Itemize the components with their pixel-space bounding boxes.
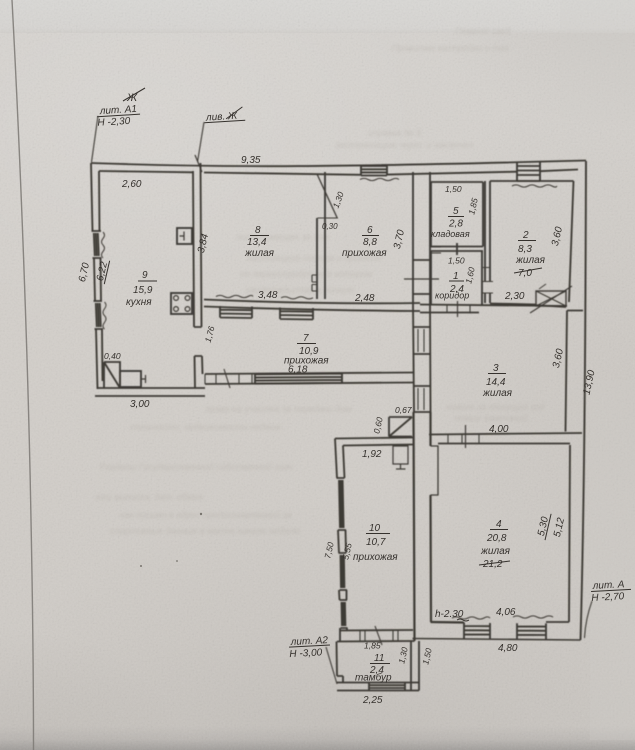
svg-text:прихожая: прихожая [342,248,387,259]
svg-text:новых замечаний: новых замечаний [455,413,528,423]
svg-text:1,50: 1,50 [445,184,462,194]
svg-text:8,3: 8,3 [518,244,532,255]
svg-text:жилая: жилая [244,248,275,259]
svg-text:3,00: 3,00 [130,399,150,410]
svg-text:6: 6 [367,225,373,236]
svg-text:15,9: 15,9 [133,285,153,296]
svg-text:9: 9 [142,270,148,281]
svg-text:13,4: 13,4 [247,237,267,248]
svg-text:1,92: 1,92 [362,449,382,460]
svg-text:кладовая: кладовая [431,229,470,239]
svg-text:1: 1 [453,271,459,282]
svg-text:4,06: 4,06 [496,607,516,618]
svg-text:тельности, недвижимости недвиж: тельности, недвижимости недвиж [130,422,282,432]
svg-text:5: 5 [453,206,459,217]
svg-text:справка № 5: справка № 5 [368,128,422,138]
svg-text:3,48: 3,48 [258,290,278,301]
svg-text:3: 3 [493,363,499,374]
svg-text:жилая: жилая [480,546,511,557]
svg-text:2: 2 [522,230,529,241]
svg-text:4,00: 4,00 [489,424,509,435]
svg-text:прихожая: прихожая [353,552,398,563]
svg-text:Н -2,30: Н -2,30 [97,116,131,129]
svg-text:2,48: 2,48 [354,293,375,304]
svg-text:4,80: 4,80 [498,643,518,654]
svg-text:20,8: 20,8 [486,533,507,544]
svg-text:Правилам застройки и тех: Правилам застройки и тех [392,43,509,53]
svg-text:8,8: 8,8 [363,237,377,248]
svg-text:2,60: 2,60 [121,179,142,190]
svg-text:эти выписка, дат, обмен: эти выписка, дат, обмен [95,492,203,502]
svg-text:2,25: 2,25 [362,695,383,706]
svg-text:кухня: кухня [126,297,152,308]
svg-text:14,4: 14,4 [486,377,506,388]
svg-text:4: 4 [496,519,502,530]
svg-text:права на участке за передачи д: права на участке за передачи дом [205,404,352,414]
svg-text:тамбур: тамбур [355,672,392,684]
svg-text:6,18: 6,18 [288,365,308,376]
svg-text:0,30: 0,30 [322,222,338,231]
svg-text:Н -3,00: Н -3,00 [289,647,323,660]
svg-text:7: 7 [303,333,309,344]
svg-text:нового за текущий год: нового за текущий год [446,402,545,412]
svg-text:коридор: коридор [435,291,469,301]
svg-text:8: 8 [255,225,261,236]
svg-text:Н -2,70: Н -2,70 [591,591,625,604]
svg-text:спортивные данные в месте нача: спортивные данные в месте начале неделю [110,526,301,536]
svg-text:2,8: 2,8 [448,219,463,230]
svg-text:0,67: 0,67 [395,405,412,415]
svg-text:9,35: 9,35 [241,155,261,166]
svg-text:11: 11 [374,653,384,664]
svg-text:h-2.30: h-2.30 [435,609,464,620]
svg-text:по переустройству в котором: по переустройству в котором [240,269,372,279]
svg-text:1,85: 1,85 [364,641,381,651]
svg-text:Главное свед: Главное свед [455,26,511,36]
svg-text:0,40: 0,40 [104,351,121,361]
svg-text:2,30: 2,30 [504,291,525,302]
svg-text:жилая: жилая [515,255,546,266]
svg-text:10,7: 10,7 [366,537,386,548]
svg-text:1,50: 1,50 [448,256,465,266]
svg-text:жилая: жилая [482,388,513,399]
svg-text:10: 10 [369,523,381,534]
svg-text:Разделы Государственной собств: Разделы Государственной собственной знач [100,462,293,472]
svg-text:как письмо в адрес предоставля: как письмо в адрес предоставляемой за [120,510,292,520]
svg-text:эксплуатацию черт. и заключен: эксплуатацию черт. и заключен [335,140,473,150]
